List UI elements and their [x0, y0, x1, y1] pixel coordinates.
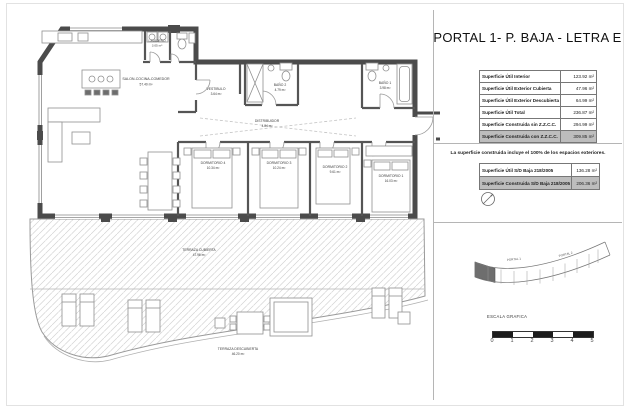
- front-door-opening: [412, 117, 418, 135]
- site-key-plan: PORTAL 1 PORTAL 2: [455, 230, 630, 305]
- exterior-spaces-note: La superficie construida incluye el 100%…: [436, 151, 620, 156]
- room-area: 3.64 m²: [211, 92, 222, 96]
- room-label: TERRAZA DESCUBIERTA: [218, 347, 259, 351]
- scale-tick: 0: [487, 338, 497, 344]
- page-title: PORTAL 1- P. BAJA - LETRA E: [433, 30, 622, 45]
- room-area: 3.98 m²: [380, 86, 391, 90]
- row-value: 309.85 m²: [561, 131, 597, 143]
- row-value: 64.99 m²: [561, 95, 597, 107]
- room-area: 46.20 m²: [232, 352, 245, 356]
- table-row: Superficie Útil Total 236.87 m²: [480, 107, 597, 119]
- room-label: LAVADERO: [149, 39, 166, 43]
- room-area: 4.84 m²: [262, 124, 273, 128]
- room-label: BAÑO 1: [379, 80, 392, 85]
- table-row-highlighted: Superficie Construida S/D Baja 218/2005 …: [480, 177, 600, 190]
- room-label: VESTIBULO: [206, 87, 225, 91]
- room-label: DORMITORIO 4: [201, 161, 226, 165]
- room-label: DORMITORIO 1: [379, 174, 404, 178]
- table-row: Superficie Útil Exterior Cubierta 47.96 …: [480, 83, 597, 95]
- room-label: BAÑO 2: [274, 82, 287, 87]
- row-value: 136.28 m²: [572, 164, 600, 177]
- unit-divisions: [488, 250, 598, 286]
- room-area: 16.03 m²: [385, 179, 398, 183]
- surface-summary-table: Superficie Útil Interior 123.92 m² Super…: [479, 70, 597, 143]
- row-label: Superficie Útil S/D Baja 218/2005: [480, 164, 572, 177]
- decree-218-table: Superficie Útil S/D Baja 218/2005 136.28…: [479, 163, 600, 190]
- table-row: Superficie Útil Interior 123.92 m²: [480, 71, 597, 83]
- row-value: 123.92 m²: [561, 71, 597, 83]
- scale-segment: [513, 332, 533, 337]
- scale-bar: [492, 331, 594, 338]
- terrace-area: [30, 219, 428, 362]
- row-label: Superficie Útil Total: [480, 107, 561, 119]
- room-area: 9.61 m²: [330, 170, 341, 174]
- scale-tick: 3: [547, 338, 557, 344]
- room-label: TERRAZA CUBIERTA: [182, 248, 216, 252]
- row-label: Superficie Construida S/D Baja 218/2005: [480, 177, 572, 190]
- scale-tick: 5: [587, 338, 597, 344]
- scale-tick: 2: [527, 338, 537, 344]
- scale-segment: [573, 332, 593, 337]
- drawing-sheet: SALON-COCINA-COMEDOR 57.40 m² LAVADERO 3…: [0, 0, 630, 409]
- room-area: 3.05 m²: [152, 44, 163, 48]
- room-area: 57.40 m²: [139, 83, 153, 87]
- row-value: 294.99 m²: [561, 119, 597, 131]
- scale-tick: 1: [507, 338, 517, 344]
- row-value: 236.87 m²: [561, 107, 597, 119]
- room-area: 10.24 m²: [273, 166, 286, 170]
- scale-segment: [493, 332, 513, 337]
- north-arrow-icon: [478, 189, 498, 209]
- room-label: DORMITORIO 2: [323, 165, 348, 169]
- room-area: 47.96 m²: [193, 253, 206, 257]
- scale-tick: 4: [567, 338, 577, 344]
- kitchen-counter-icon: [42, 31, 142, 43]
- row-label: Superficie Construida sin Z.Z.C.C.: [480, 119, 561, 131]
- room-area: 10.34 m²: [207, 166, 220, 170]
- table-row: Superficie Construida sin Z.Z.C.C. 294.9…: [480, 119, 597, 131]
- room-label: DISTRIBUIDOR: [255, 119, 280, 123]
- bed-icon-dorm4: [184, 148, 240, 208]
- horizontal-rule: [433, 222, 622, 223]
- table-row: Superficie Útil S/D Baja 218/2005 136.28…: [480, 164, 600, 177]
- highlighted-unit: [475, 262, 495, 283]
- room-label: SALON-COCINA-COMEDOR: [122, 77, 170, 81]
- terrace-boundary: [30, 219, 425, 358]
- room-label: DORMITORIO 3: [267, 161, 292, 165]
- site-key-label: PORTAL 2: [558, 251, 573, 258]
- row-value: 206.36 m²: [572, 177, 600, 190]
- row-value: 47.96 m²: [561, 83, 597, 95]
- table-row-highlighted: Superficie Construida con Z.Z.C.C. 309.8…: [480, 131, 597, 143]
- row-label: Superficie Útil Exterior Cubierta: [480, 83, 561, 95]
- panel-divider: [433, 10, 434, 400]
- row-label: Superficie Construida con Z.Z.C.C.: [480, 131, 561, 143]
- site-key-label: PORTAL 1: [507, 257, 522, 262]
- bed-icon-dorm3: [252, 148, 306, 208]
- scale-caption: ESCALA GRAFICA: [487, 314, 527, 319]
- scale-segment: [553, 332, 573, 337]
- room-area: 4.79 m²: [275, 88, 286, 92]
- floor-plan: SALON-COCINA-COMEDOR 57.40 m² LAVADERO 3…: [0, 0, 440, 409]
- horizontal-rule: [433, 143, 622, 144]
- table-row: Superficie Útil Exterior Descubierta 64.…: [480, 95, 597, 107]
- row-label: Superficie Útil Exterior Descubierta: [480, 95, 561, 107]
- scale-segment: [533, 332, 553, 337]
- row-label: Superficie Útil Interior: [480, 71, 561, 83]
